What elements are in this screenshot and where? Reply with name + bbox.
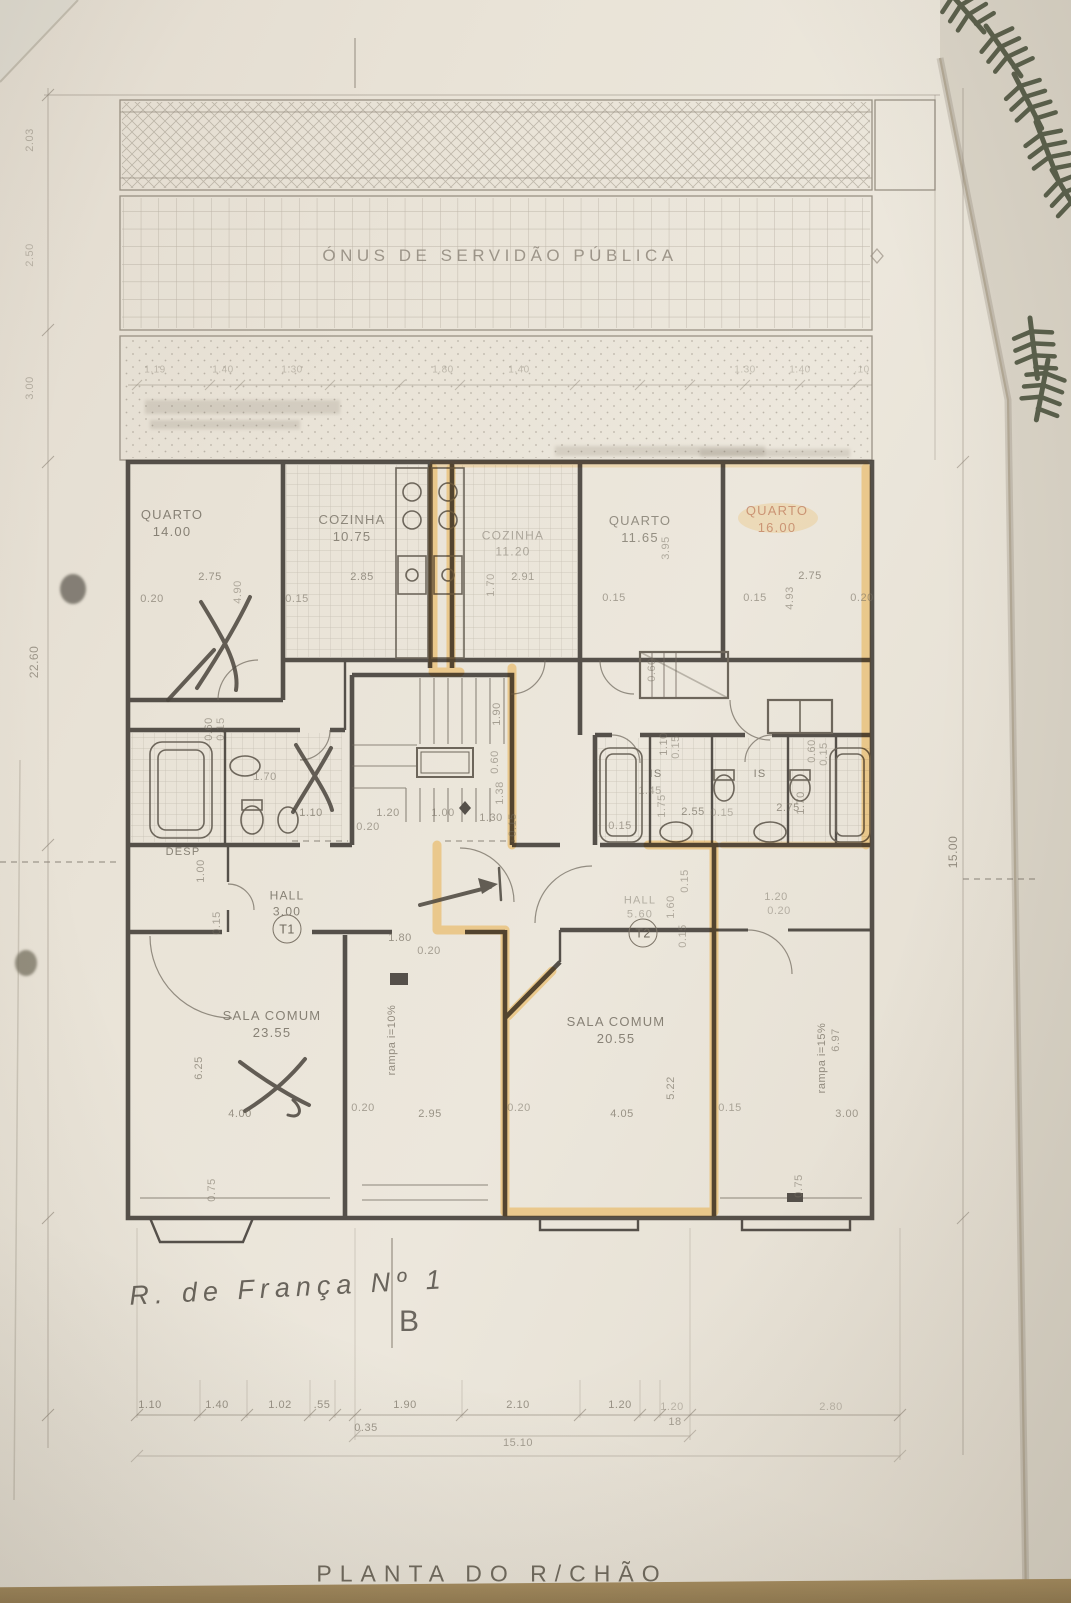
dim-label: 1.20	[376, 807, 399, 819]
dim-label: 1.20	[608, 1399, 631, 1411]
dim-label: 22.60	[27, 646, 41, 679]
dim-label: 3.00	[24, 376, 36, 399]
room-label: QUARTO16.00	[746, 503, 808, 537]
dim-label: 1.30	[479, 812, 502, 824]
dim-label: 3.00	[835, 1108, 858, 1120]
dim-label: 1.70	[795, 791, 807, 814]
dim-label: 1.90	[393, 1399, 416, 1411]
dim-label: 2.75	[798, 570, 821, 582]
dim-label: 1.40	[508, 365, 529, 376]
dim-label: 2.91	[511, 571, 534, 583]
dim-label: 1.38	[494, 781, 506, 804]
photo-scene: ÓNUS DE SERVIDÃO PÚBLICA R. de França Nº…	[0, 0, 1071, 1603]
dim-label: 0.60	[203, 717, 215, 740]
dim-label: 0.15	[818, 742, 830, 765]
room-name: SALA COMUM	[567, 1014, 666, 1029]
room-label: IS	[650, 767, 663, 781]
dim-label: 1.40	[789, 365, 810, 376]
dim-label: 0.15	[718, 1102, 741, 1114]
dim-label: 2.95	[418, 1108, 441, 1120]
room-area: 14.00	[153, 524, 192, 539]
room-label: SALA COMUM23.55	[223, 1008, 322, 1042]
room-label: SALA COMUM20.55	[567, 1014, 666, 1048]
dim-label: 0.35	[354, 1422, 377, 1434]
dim-label: 0.20	[351, 1102, 374, 1114]
dim-label: 1.30	[281, 365, 302, 376]
dim-label: 0.15	[743, 592, 766, 604]
label-layer: ÓNUS DE SERVIDÃO PÚBLICA R. de França Nº…	[0, 0, 1071, 1603]
room-label: IS	[754, 767, 767, 781]
dim-label: 4.93	[784, 586, 796, 609]
dim-label: 2.75	[198, 571, 221, 583]
dim-label: 4.05	[610, 1108, 633, 1120]
dim-label: 2.50	[24, 243, 36, 266]
dim-label: 0.20	[356, 821, 379, 833]
room-area: 11.20	[495, 544, 530, 558]
dim-label: 0.15	[710, 807, 733, 819]
dim-label: 15.00	[946, 836, 960, 869]
dim-label: 1.40	[205, 1399, 228, 1411]
dim-label: 1.60	[665, 895, 677, 918]
dim-label: 1.20	[764, 891, 787, 903]
dim-label: 0.15	[670, 735, 682, 758]
room-label: COZINHA11.20	[482, 528, 544, 559]
dim-label: 2.55	[681, 806, 704, 818]
dim-label: 0.20	[140, 593, 163, 605]
room-name: HALL	[624, 895, 656, 907]
dim-label: 0.20	[850, 592, 873, 604]
dim-label: 6.25	[193, 1056, 205, 1079]
section-letter: B	[399, 1305, 419, 1339]
dim-label: 1.80	[432, 365, 453, 376]
room-label: QUARTO14.00	[141, 507, 203, 541]
room-name: COZINHA	[482, 528, 544, 542]
dim-label: .55	[314, 1399, 331, 1411]
room-name: QUARTO	[746, 503, 808, 518]
servitude-band-text: ÓNUS DE SERVIDÃO PÚBLICA	[322, 246, 677, 266]
dim-label: 0.75	[793, 1174, 805, 1197]
dim-label: 0.15	[285, 593, 308, 605]
dim-label: .10	[854, 365, 869, 376]
room-name: IS	[650, 768, 663, 780]
room-label: DESP	[166, 845, 201, 859]
room-name: COZINHA	[319, 512, 386, 527]
room-label: QUARTO11.65	[609, 513, 671, 547]
unit-tag-t1: T1	[273, 915, 302, 944]
dim-label: 1.20	[660, 1401, 683, 1413]
room-area: 10.75	[333, 529, 372, 544]
room-name: QUARTO	[609, 513, 671, 528]
dim-label: 2.10	[506, 1399, 529, 1411]
dim-label: 2.80	[819, 1401, 842, 1413]
room-name: HALL	[270, 888, 305, 902]
dim-label: 1.40	[212, 365, 233, 376]
dim-label: 0.15	[215, 717, 227, 740]
dim-label: 0.60	[806, 739, 818, 762]
room-area: 20.55	[597, 1031, 636, 1046]
dim-label: rampa i=15%	[816, 1023, 828, 1094]
dim-label: 1.30	[734, 365, 755, 376]
dim-label: 0.20	[417, 945, 440, 957]
dim-label: rampa i=10%	[386, 1005, 398, 1076]
room-area: 23.55	[253, 1025, 292, 1040]
dim-label: 0.60	[646, 658, 658, 681]
dim-label: 1.10	[299, 807, 322, 819]
dim-label: 0.60	[489, 750, 501, 773]
dim-label: 2.85	[350, 571, 373, 583]
room-name: IS	[754, 768, 767, 780]
dim-label: 2.03	[24, 128, 36, 151]
dim-label: 1.02	[268, 1399, 291, 1411]
dim-label: 1.10	[138, 1399, 161, 1411]
dim-label: 1.00	[431, 807, 454, 819]
dim-label: 5.22	[665, 1076, 677, 1099]
room-area: 11.65	[621, 530, 659, 545]
dim-label: 0.15	[211, 911, 223, 934]
dim-label: 4.90	[232, 580, 244, 603]
room-name: QUARTO	[141, 507, 203, 522]
dim-label: 4.00	[228, 1108, 251, 1120]
dim-label: 0.15	[608, 820, 631, 832]
dim-label: 1.19	[144, 365, 165, 376]
dim-label: 6.97	[830, 1028, 842, 1051]
dim-label: 0.15	[507, 813, 519, 836]
dim-label: 18	[668, 1416, 681, 1428]
dim-label: 0.15	[602, 592, 625, 604]
room-name: SALA COMUM	[223, 1008, 322, 1023]
dim-label: 0.15	[679, 869, 691, 892]
dim-label: 0.20	[767, 905, 790, 917]
dim-label: 0.20	[507, 1102, 530, 1114]
dim-label: 1.70	[485, 573, 497, 596]
dim-label: 15.10	[503, 1437, 533, 1449]
dim-label: 1.00	[195, 859, 207, 882]
room-label: COZINHA10.75	[319, 512, 386, 546]
dim-label: 0.15	[677, 924, 689, 947]
dim-label: 1.70	[253, 771, 276, 783]
dim-label: 1.75	[656, 794, 668, 817]
room-area: 16.00	[758, 520, 797, 535]
dim-label: 1.90	[491, 702, 503, 725]
room-name: DESP	[166, 846, 201, 858]
unit-tag-t2: T2	[629, 919, 658, 948]
dim-label: 0.75	[206, 1178, 218, 1201]
dim-label: 1.80	[388, 932, 411, 944]
dim-label: 1.10	[658, 732, 670, 755]
